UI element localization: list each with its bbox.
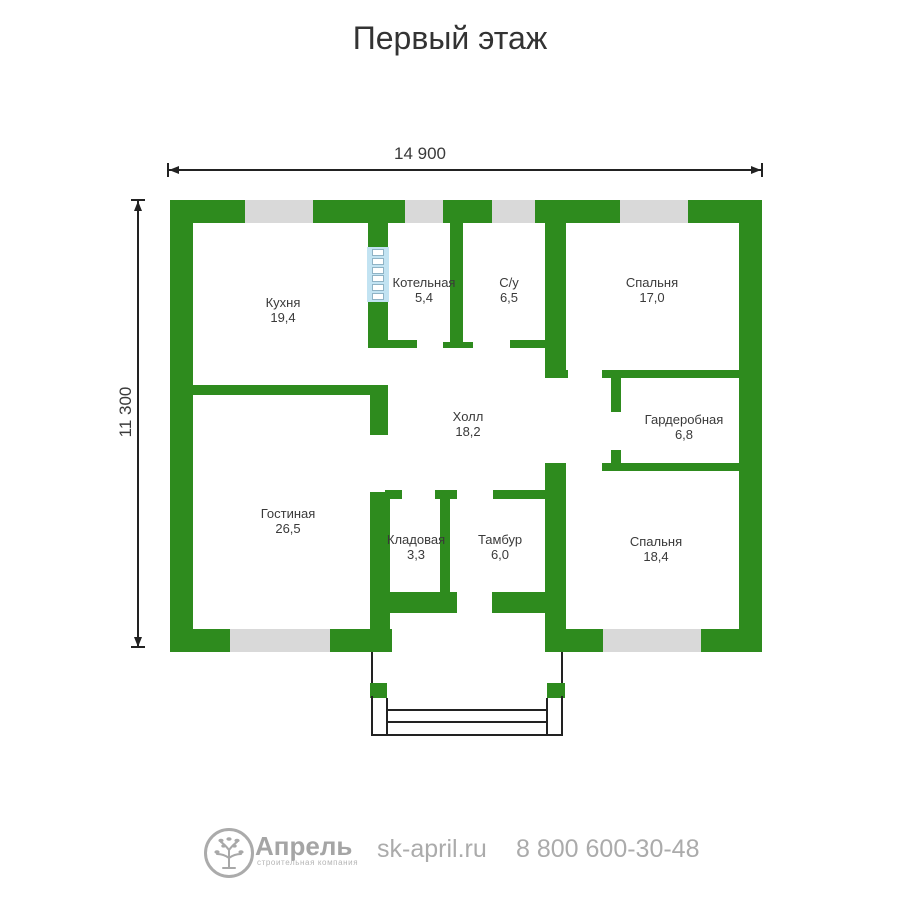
room-name: Гардеробная xyxy=(645,412,724,427)
window xyxy=(620,200,688,223)
interior-wall xyxy=(545,463,566,652)
room-label-storage: Кладовая 3,3 xyxy=(387,532,445,562)
interior-wall xyxy=(368,302,388,348)
room-area: 5,4 xyxy=(393,290,456,305)
room-name: Гостиная xyxy=(261,506,316,521)
room-area: 19,4 xyxy=(266,310,301,325)
arrow-left-icon xyxy=(169,166,179,174)
exterior-wall-top xyxy=(688,200,762,223)
vent-cell xyxy=(372,258,384,265)
porch-steps-line xyxy=(386,698,388,734)
room-area: 6,0 xyxy=(478,547,522,562)
interior-wall xyxy=(368,223,388,247)
interior-wall xyxy=(602,370,739,378)
interior-wall xyxy=(385,490,402,499)
porch-steps-line xyxy=(387,709,547,711)
room-label-wardrobe: Гардеробная 6,8 xyxy=(645,412,724,442)
window xyxy=(230,629,330,652)
exterior-wall-top xyxy=(535,200,620,223)
entry-recess-wall xyxy=(492,592,566,613)
brand-subtitle: строительная компания xyxy=(257,858,358,867)
tree-icon xyxy=(209,833,249,873)
window xyxy=(603,629,701,652)
window xyxy=(405,200,443,223)
dimension-tick xyxy=(131,646,145,648)
interior-wall xyxy=(602,463,739,471)
room-label-living: Гостиная 26,5 xyxy=(261,506,316,536)
room-name: Котельная xyxy=(393,275,456,290)
room-name: Спальня xyxy=(630,534,682,549)
exterior-wall-top xyxy=(443,200,492,223)
vent-cell xyxy=(372,267,384,274)
interior-wall xyxy=(388,340,417,348)
interior-wall xyxy=(493,490,545,499)
room-name: Кухня xyxy=(266,295,301,310)
interior-wall xyxy=(193,385,370,395)
room-label-bathroom: С/у 6,5 xyxy=(499,275,519,305)
room-label-bedroom1: Спальня 17,0 xyxy=(626,275,678,305)
page-title: Первый этаж xyxy=(0,20,900,57)
arrow-right-icon xyxy=(751,166,761,174)
width-dimension-label: 14 900 xyxy=(348,144,492,164)
interior-wall xyxy=(370,492,390,652)
interior-wall xyxy=(545,223,566,377)
porch-steps xyxy=(371,696,563,736)
dimension-tick xyxy=(131,199,145,201)
room-label-bedroom2: Спальня 18,4 xyxy=(630,534,682,564)
interior-wall xyxy=(370,385,388,435)
vent-cell xyxy=(372,275,384,282)
room-name: С/у xyxy=(499,275,519,290)
room-label-vestibule: Тамбур 6,0 xyxy=(478,532,522,562)
exterior-wall-bottom xyxy=(701,629,762,652)
logo-tree-icon xyxy=(204,828,254,878)
room-name: Кладовая xyxy=(387,532,445,547)
exterior-wall-left xyxy=(170,200,193,652)
porch-steps-line xyxy=(387,721,547,723)
exterior-wall-bottom xyxy=(563,629,603,652)
window xyxy=(245,200,313,223)
porch-steps-line xyxy=(546,698,548,734)
phone-number: 8 800 600-30-48 xyxy=(516,835,699,864)
room-name: Спальня xyxy=(626,275,678,290)
interior-wall xyxy=(435,490,457,499)
room-name: Холл xyxy=(453,409,484,424)
window xyxy=(492,200,535,223)
room-area: 6,8 xyxy=(645,427,724,442)
arrow-up-icon xyxy=(134,201,142,211)
interior-wall xyxy=(545,370,568,378)
interior-wall xyxy=(611,378,621,412)
interior-wall xyxy=(611,450,621,463)
room-area: 26,5 xyxy=(261,521,316,536)
height-dimension-label: 11 300 xyxy=(116,380,136,444)
room-label-boiler: Котельная 5,4 xyxy=(393,275,456,305)
vent-cell xyxy=(372,249,384,256)
room-area: 18,4 xyxy=(630,549,682,564)
room-label-kitchen: Кухня 19,4 xyxy=(266,295,301,325)
website-link[interactable]: sk-april.ru xyxy=(377,835,487,864)
exterior-wall-bottom xyxy=(170,629,230,652)
top-dimension-line xyxy=(168,169,762,171)
exterior-wall-top xyxy=(313,200,405,223)
dimension-tick xyxy=(761,163,763,177)
room-name: Тамбур xyxy=(478,532,522,547)
exterior-wall-top xyxy=(170,200,245,223)
interior-wall xyxy=(443,342,473,348)
left-dimension-line xyxy=(137,200,139,648)
entry-recess-wall xyxy=(373,592,457,613)
vent-cell xyxy=(372,284,384,291)
room-area: 18,2 xyxy=(453,424,484,439)
room-label-hall: Холл 18,2 xyxy=(453,409,484,439)
room-area: 3,3 xyxy=(387,547,445,562)
room-area: 17,0 xyxy=(626,290,678,305)
interior-wall xyxy=(510,340,545,348)
chimney-vent-block xyxy=(367,247,389,302)
vent-cell xyxy=(372,293,384,300)
dimension-tick xyxy=(167,163,169,177)
room-area: 6,5 xyxy=(499,290,519,305)
exterior-wall-right xyxy=(739,200,762,652)
